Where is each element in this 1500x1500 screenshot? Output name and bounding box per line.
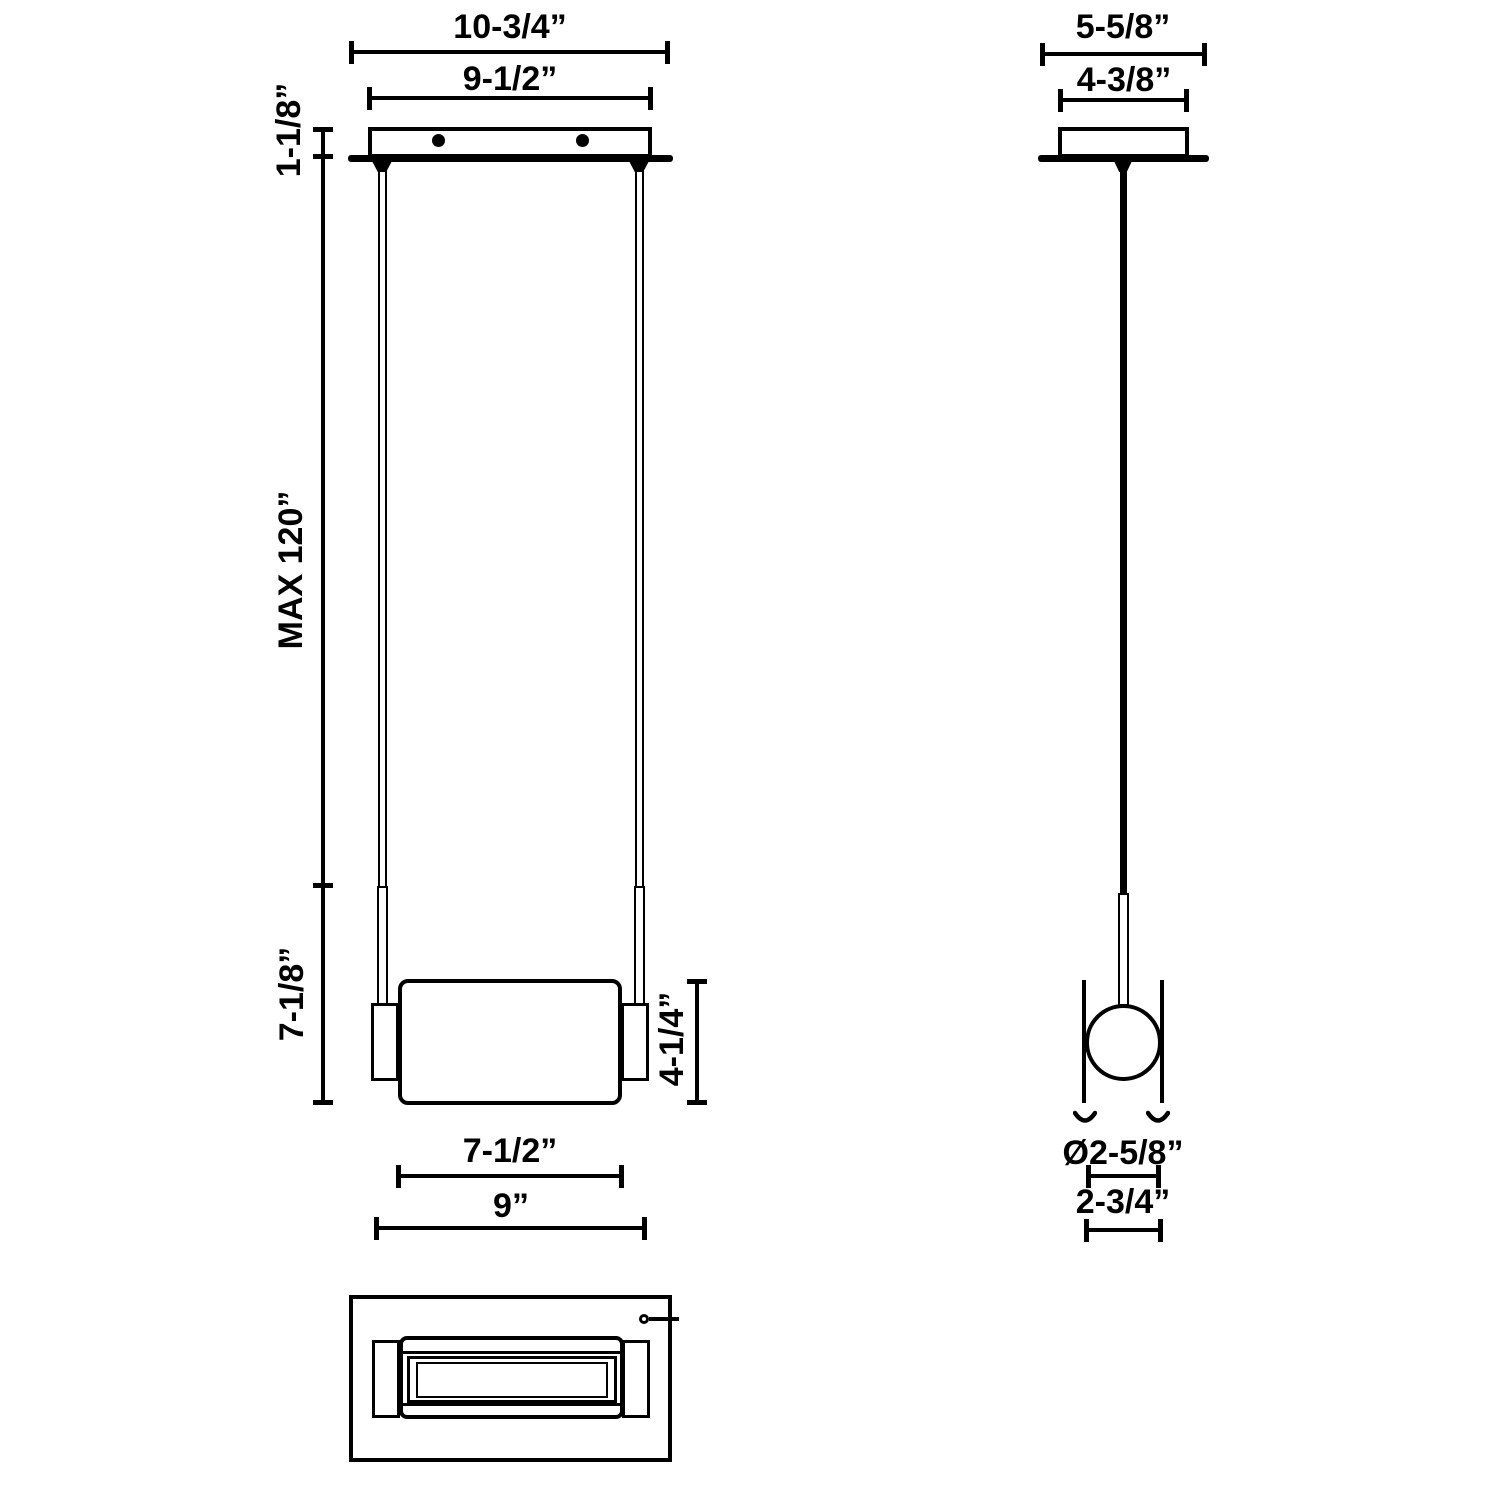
dim-label-canopy-outer-depth: 5-5/8” bbox=[1076, 10, 1171, 44]
canopy-side bbox=[1058, 127, 1189, 158]
dim-tick bbox=[1184, 89, 1189, 112]
dim-tick bbox=[1058, 89, 1063, 112]
dim-label-shade-diameter: Ø2-5/8” bbox=[1063, 1136, 1184, 1170]
arc-mark-left bbox=[1073, 1110, 1097, 1128]
dim-tick bbox=[1202, 43, 1207, 66]
dim-line-canopy-outer-depth bbox=[1042, 52, 1205, 56]
dim-label-overall-depth: 2-3/4” bbox=[1076, 1185, 1171, 1219]
shade-cylinder-side bbox=[1085, 1004, 1162, 1081]
stem-side bbox=[1118, 893, 1129, 1006]
canopy-flange-side bbox=[1038, 155, 1209, 162]
dim-tick bbox=[1084, 1219, 1089, 1242]
arc-mark-right bbox=[1146, 1110, 1170, 1128]
dim-tick bbox=[1040, 43, 1045, 66]
dim-tick bbox=[1158, 1219, 1163, 1242]
dim-line-overall-depth bbox=[1086, 1228, 1162, 1232]
suspension-cable-side bbox=[1120, 170, 1127, 895]
dim-line-canopy-inner-depth bbox=[1060, 98, 1189, 102]
dim-label-canopy-inner-depth: 4-3/8” bbox=[1077, 63, 1172, 97]
dimension-drawing: 10-3/4” 9-1/2” 1-1/8” MAX bbox=[0, 0, 1500, 1500]
side-view: 5-5/8” 4-3/8” Ø2-5/8” 2-3/4 bbox=[0, 0, 1500, 1500]
dim-line-shade-diameter bbox=[1088, 1174, 1160, 1178]
